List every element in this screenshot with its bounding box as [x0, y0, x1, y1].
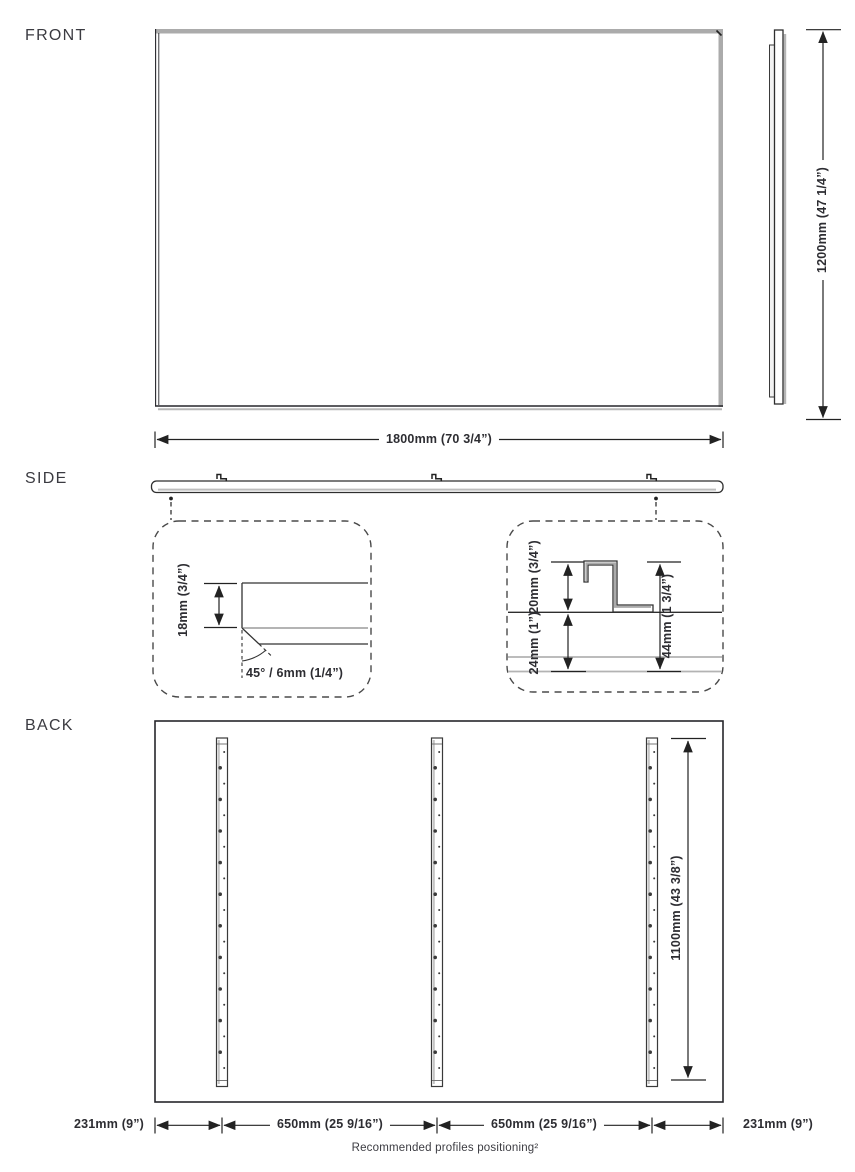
detail-leader-left: [169, 497, 173, 520]
panel-depth-dimension: 24mm (1”): [528, 612, 542, 675]
edge-chamfer-dimension: 45° / 6mm (1/4”): [246, 667, 343, 681]
spacing-left-span-dimension: 650mm (25 9/16”): [270, 1118, 390, 1132]
back-view-label: BACK: [25, 717, 74, 735]
drawing-linework: [0, 0, 855, 1172]
edge-thickness-dimension: 18mm (3/4”): [177, 563, 191, 637]
profiles-positioning-footnote: Recommended profiles positioning²: [352, 1142, 539, 1154]
detail-leader-right: [654, 497, 658, 520]
side-view-panel: [152, 481, 724, 493]
profile-height-dimension: 20mm (3/4”): [528, 540, 542, 614]
front-view-panel: [155, 29, 723, 409]
front-edge-profile: [770, 30, 786, 404]
back-spacing-dimension-lines: [155, 1118, 723, 1134]
front-view-label: FRONT: [25, 27, 87, 45]
spacing-right-span-dimension: 650mm (25 9/16”): [484, 1118, 604, 1132]
spacing-left-margin-dimension: 231mm (9”): [74, 1118, 144, 1132]
wall-profile-cross-section: [584, 561, 653, 612]
side-view-label: SIDE: [25, 470, 68, 488]
spacing-right-margin-dimension: 231mm (9”): [743, 1118, 813, 1132]
front-width-dimension: 1800mm (70 3/4”): [379, 433, 499, 447]
front-height-dimension: 1200mm (47 1/4”): [816, 160, 830, 280]
profile-length-dimension: 1100mm (43 3/8”): [670, 855, 684, 960]
total-depth-dimension: 44mm (1 3/4”): [661, 574, 675, 659]
technical-drawing-sheet: FRONT SIDE BACK 1800mm (70 3/4”) 1200mm …: [0, 0, 855, 1172]
